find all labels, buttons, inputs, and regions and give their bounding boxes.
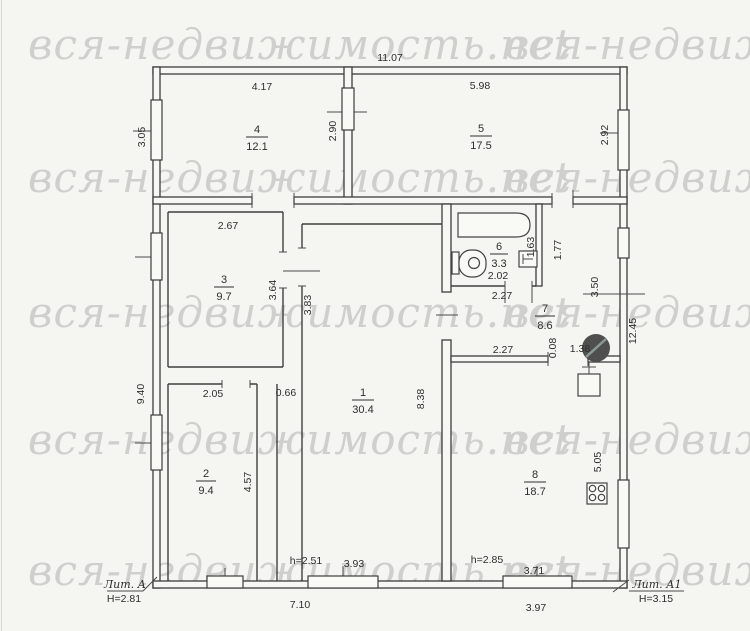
floor-plan-svg: 11.07 4.17 5.98 2.67 2.02 2.27 2.27 1.38… bbox=[0, 0, 750, 631]
dim-right-upper: 3.50 bbox=[589, 277, 601, 298]
dim-lobby-right: 1.77 bbox=[552, 240, 564, 261]
room-6-number: 6 bbox=[496, 241, 502, 253]
door-ticks bbox=[133, 112, 645, 576]
dim-bath-sink: 1.63 bbox=[525, 237, 537, 258]
room-7-area: 8.6 bbox=[537, 320, 552, 332]
exterior-walls bbox=[153, 67, 627, 588]
dim-room1-right: 8.38 bbox=[415, 389, 427, 410]
dim-room4-left: 3.05 bbox=[136, 127, 148, 148]
dim-bath-width: 2.02 bbox=[488, 270, 509, 282]
dim-room4-width: 4.17 bbox=[252, 81, 273, 93]
room-2-area: 9.4 bbox=[198, 485, 213, 497]
lit-a1-label: Лит. А1 bbox=[631, 578, 681, 591]
dimension-labels: 11.07 4.17 5.98 2.67 2.02 2.27 2.27 1.38… bbox=[203, 52, 591, 614]
room-4-number: 4 bbox=[254, 124, 260, 136]
room-4-area: 12.1 bbox=[246, 141, 267, 153]
dim-room5-width: 5.98 bbox=[470, 80, 491, 92]
lit-a-height: H=2.81 bbox=[107, 593, 141, 605]
room-3-area: 9.7 bbox=[216, 291, 231, 303]
kitchen-sink-icon bbox=[578, 362, 600, 396]
dim-room1-window: 3.93 bbox=[344, 558, 365, 570]
room-7-number: 7 bbox=[542, 303, 548, 315]
lit-a-label: Лит. А bbox=[103, 578, 146, 591]
dim-top-total: 11.07 bbox=[377, 52, 403, 64]
dim-right-total: 12.45 bbox=[627, 318, 639, 344]
room-5-number: 5 bbox=[478, 123, 484, 135]
room-labels: 1 30.4 2 9.4 3 9.7 4 12.1 5 17.5 6 3.3 7… bbox=[196, 123, 555, 498]
dim-room8-window: 3.71 bbox=[524, 565, 545, 577]
lit-a1-height: H=3.15 bbox=[639, 593, 673, 605]
dim-bath-door: 2.27 bbox=[492, 290, 513, 302]
dim-room3-right: 3.64 bbox=[267, 280, 279, 301]
dim-room1-ceiling: h=2.51 bbox=[290, 555, 323, 567]
dim-room8-right: 5.05 bbox=[592, 452, 604, 473]
toilet-icon bbox=[452, 250, 486, 277]
room-3-number: 3 bbox=[221, 274, 227, 286]
scanned-floorplan-page: вся-недвижимость.netвся-недвижимость.net… bbox=[0, 0, 750, 631]
stove-icon bbox=[587, 483, 607, 504]
dimension-labels-vertical: 3.05 2.90 2.92 3.64 3.83 1.63 1.77 3.50 … bbox=[135, 121, 639, 493]
dim-rooms45-divider: 2.90 bbox=[327, 121, 339, 142]
room-6-area: 3.3 bbox=[491, 258, 506, 270]
room-1-area: 30.4 bbox=[352, 404, 373, 416]
dim-room5-right: 2.92 bbox=[599, 125, 611, 146]
room-2-number: 2 bbox=[203, 468, 209, 480]
interior-walls bbox=[153, 67, 627, 581]
dim-door-78: 1.38 bbox=[570, 343, 591, 355]
room-8-number: 8 bbox=[532, 469, 538, 481]
room-1-number: 1 bbox=[360, 387, 366, 399]
dim-room2-right: 4.57 bbox=[242, 472, 254, 493]
room-5-area: 17.5 bbox=[470, 140, 491, 152]
dim-room7-bottom: 2.27 bbox=[493, 344, 514, 356]
dim-room2-width: 2.05 bbox=[203, 388, 224, 400]
dim-room3-width: 2.67 bbox=[218, 220, 239, 232]
dim-corridor-width: 0.66 bbox=[276, 387, 297, 399]
dim-room1-left-upper: 3.83 bbox=[302, 295, 314, 316]
dim-room8-ceiling: h=2.85 bbox=[471, 554, 504, 566]
room-8-area: 18.7 bbox=[524, 486, 545, 498]
dim-left-total: 9.40 bbox=[135, 384, 147, 405]
bathtub-icon bbox=[458, 213, 530, 237]
dim-bottom-left-total: 7.10 bbox=[290, 599, 311, 611]
dim-bottom-right-total: 3.97 bbox=[526, 602, 547, 614]
dim-step: 0.08 bbox=[547, 338, 559, 359]
